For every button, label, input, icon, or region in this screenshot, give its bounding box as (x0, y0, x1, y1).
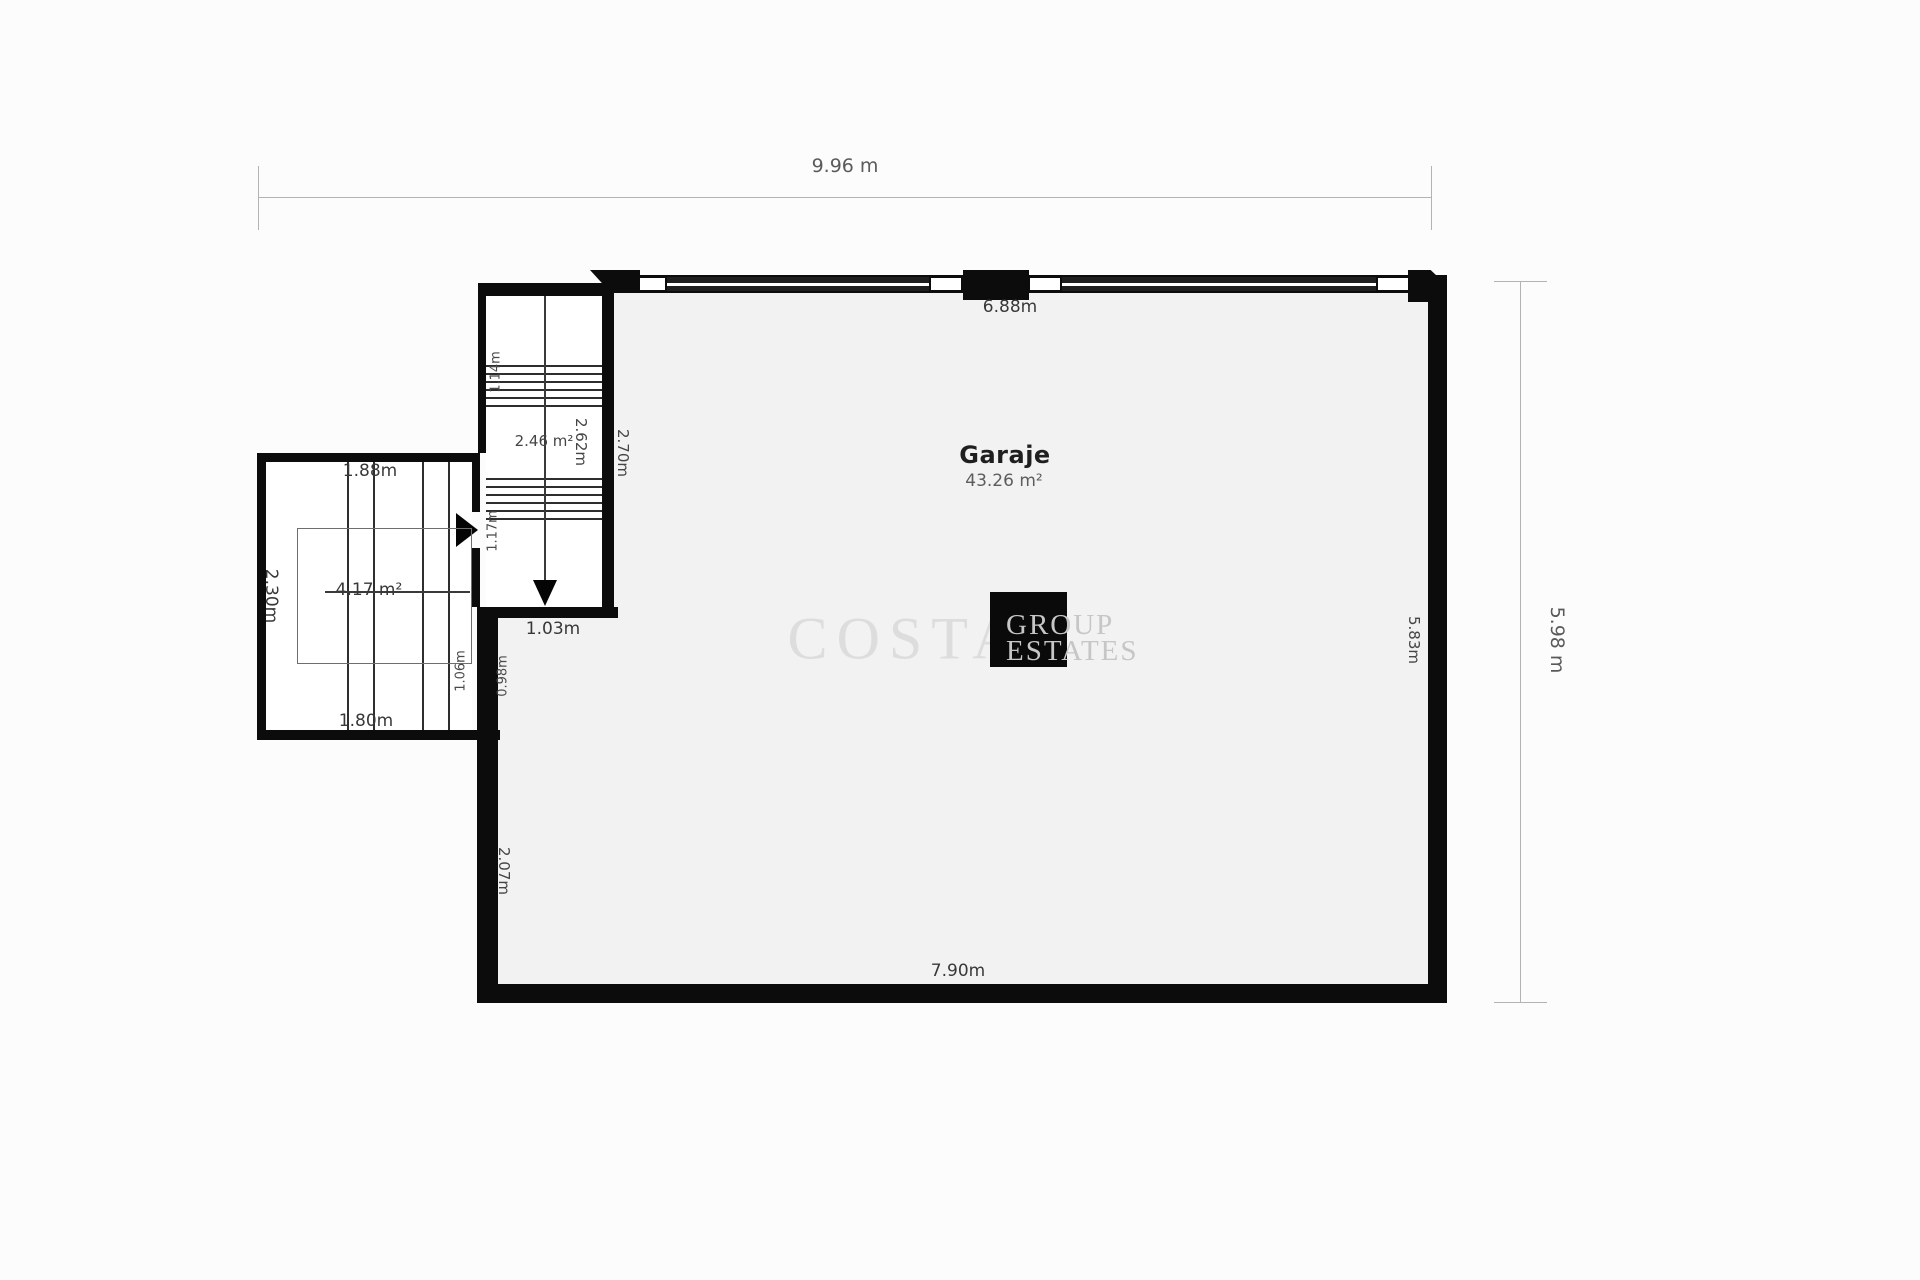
stairwell-left-wall (478, 283, 486, 453)
right-dimension-tick-top (1494, 281, 1547, 282)
window-strip-left-glass (667, 283, 930, 286)
top-dimension-tick-left (258, 166, 259, 230)
watermark-brand-word: COSTA (788, 605, 1025, 674)
shared-wall-lower (472, 548, 480, 607)
garage-room-name: Garaje (959, 441, 1050, 469)
side-room-bottom-wall (257, 730, 500, 740)
window-strip-right-glass (1062, 283, 1376, 286)
stairwell-dim-door: 1.17m (486, 510, 501, 552)
stair-direction-down-arrow (533, 580, 557, 606)
top-dimension-label: 9.96 m (812, 155, 879, 177)
top-dimension-tick-right (1431, 166, 1432, 230)
stairwell-dim-upper-flight: 1.14m (489, 351, 504, 393)
top-wall-pillar (963, 270, 1029, 300)
watermark-brand-line2: ESTATES (1006, 637, 1139, 666)
junction-dim-right: 0.98m (496, 655, 511, 697)
window-mullion-4 (1376, 276, 1410, 292)
right-dimension-tick-bottom (1494, 1002, 1547, 1003)
right-dimension-line (1520, 281, 1521, 1003)
right-dimension-label: 5.98 m (1546, 607, 1568, 674)
garage-room-area: 43.26 m² (965, 471, 1042, 491)
side-room-dim-left: 2.30m (261, 569, 281, 623)
side-room-area: 4.17 m² (336, 580, 403, 600)
side-room-dim-bottom: 1.80m (339, 711, 393, 731)
stairwell-area: 2.46 m² (515, 432, 574, 450)
stairwell-dim-right: 2.70m (614, 429, 632, 477)
floor-plan: 9.96 m 5.98 m (0, 0, 1920, 1280)
stairwell-bottom-wall (477, 607, 618, 618)
garage-floor-notch (496, 616, 614, 986)
garage-dim-bottom: 7.90m (931, 961, 985, 981)
window-mullion-2 (929, 276, 963, 292)
window-mullion-3 (1028, 276, 1062, 292)
garage-dim-left-lower: 2.07m (495, 847, 513, 895)
garage-bottom-wall (477, 984, 1447, 1003)
garage-right-wall (1428, 275, 1447, 1003)
stairwell-dim-bottom: 1.03m (526, 619, 580, 639)
stairwell-top-wall (478, 283, 608, 296)
garage-dim-top: 6.88m (983, 297, 1037, 317)
stairwell-right-wall (602, 281, 614, 618)
junction-dim-left: 1.06m (454, 650, 469, 692)
top-dimension-line (258, 197, 1432, 198)
stairwell-dim-inner: 2.62m (572, 418, 590, 466)
side-room-dim-top: 1.88m (343, 461, 397, 481)
garage-dim-right: 5.83m (1405, 616, 1423, 664)
